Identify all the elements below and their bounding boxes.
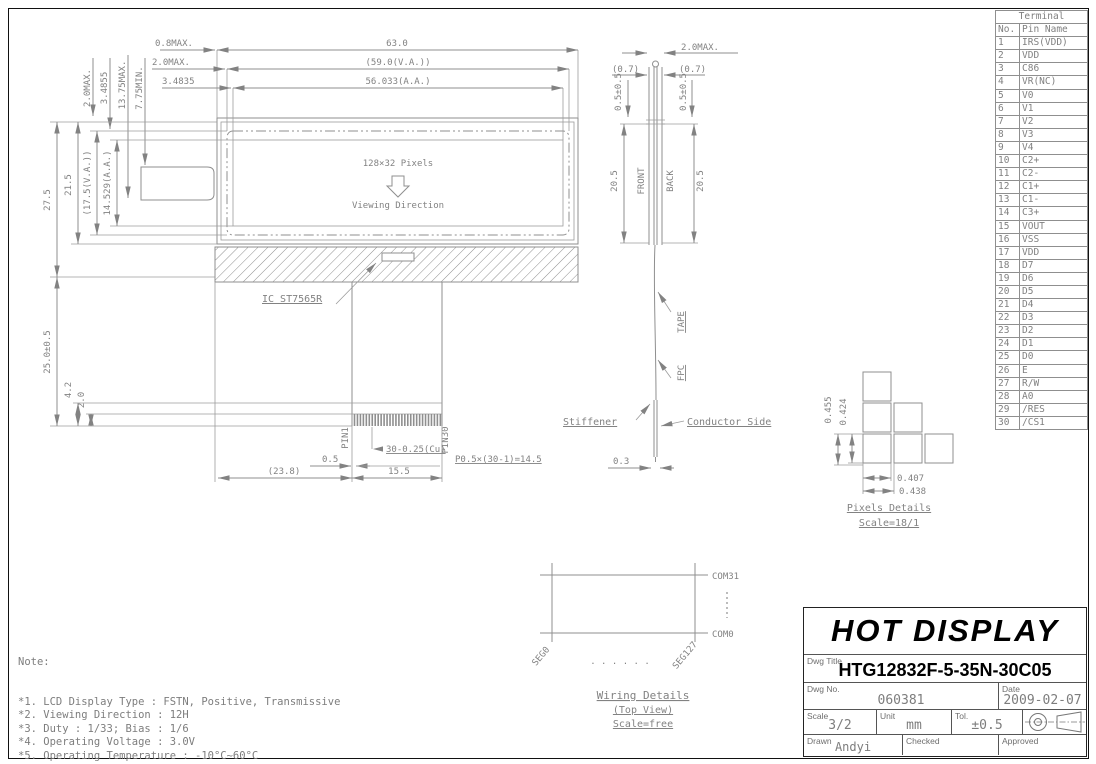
dim-4-2: 4.2 xyxy=(64,382,74,398)
terminal-row: 27R/W xyxy=(996,377,1088,390)
dwg-title-value: HTG12832F-5-35N-30C05 xyxy=(804,660,1086,681)
dim-27-5: 27.5 xyxy=(43,189,53,211)
wiring-details-subtitle: (Top View) xyxy=(613,705,673,716)
scale-value: 3/2 xyxy=(804,718,876,733)
dim-2-0max-left: 2.0MAX. xyxy=(83,69,93,107)
terminal-row: 17VDD xyxy=(996,246,1088,259)
terminal-table-title: Terminal xyxy=(996,11,1088,24)
terminal-row: 28A0 xyxy=(996,390,1088,403)
terminal-table: Terminal No. Pin Name 1IRS(VDD)2VDD3C864… xyxy=(995,10,1088,430)
px-dim-0-424: 0.424 xyxy=(839,398,849,425)
dim-2-0: 2.0 xyxy=(77,392,87,408)
terminal-row: 21D4 xyxy=(996,299,1088,312)
date-value: 2009-02-07 xyxy=(999,693,1086,708)
terminal-row: 19D6 xyxy=(996,272,1088,285)
company-name: HOT DISPLAY xyxy=(804,608,1086,654)
terminal-row: 8V3 xyxy=(996,128,1088,141)
terminal-row: 16VSS xyxy=(996,233,1088,246)
approved-label: Approved xyxy=(1002,736,1038,746)
projection-symbol-icon xyxy=(1023,710,1087,734)
dim-25-0: 25.0±0.5 xyxy=(43,330,53,373)
terminal-row: 5V0 xyxy=(996,89,1088,102)
terminal-row: 24D1 xyxy=(996,338,1088,351)
viewing-direction-label: Viewing Direction xyxy=(352,201,444,211)
dim-30-cu: 30-0.25(Cu) xyxy=(386,445,446,455)
left-tab xyxy=(141,167,214,200)
dim-63: 63.0 xyxy=(386,39,408,49)
unit-value: mm xyxy=(877,718,951,733)
fpc-label: FPC xyxy=(677,365,687,381)
terminal-table-body: 1IRS(VDD)2VDD3C864VR(NC)5V06V17V28V39V41… xyxy=(996,37,1088,430)
px-dim-0-407: 0.407 xyxy=(897,474,924,484)
active-area-outline xyxy=(233,140,563,226)
pin1-label: PIN1 xyxy=(341,427,351,449)
viewing-direction-arrow xyxy=(387,176,409,197)
seg-dots: . . . . . . xyxy=(590,657,650,667)
terminal-row: 18D7 xyxy=(996,259,1088,272)
seg0-label: SEG0 xyxy=(531,645,553,668)
dim-56-aa: 56.033(A.A.) xyxy=(365,77,430,87)
side-view: 2.0MAX. (0.7) (0.7) 0.5±0.5 0.5±0.5 20.5… xyxy=(563,43,771,468)
sv-dim-0-5-right: 0.5±0.5 xyxy=(679,73,689,111)
pixels-details: 0.455 0.424 0.407 0.438 Pixels Details S… xyxy=(824,372,953,529)
checked-label: Checked xyxy=(906,736,940,746)
dim-7-75min: 7.75MIN. xyxy=(135,66,145,109)
terminal-row: 6V1 xyxy=(996,102,1088,115)
dim-21-5: 21.5 xyxy=(64,174,74,196)
sv-dim-2-0max: 2.0MAX. xyxy=(681,43,719,53)
terminal-row: 23D2 xyxy=(996,325,1088,338)
dim-17-5-va: (17.5(V.A.)) xyxy=(83,150,93,215)
terminal-row: 9V4 xyxy=(996,141,1088,154)
dwg-no-value: 060381 xyxy=(804,693,998,708)
pixels-label: 128×32 Pixels xyxy=(363,159,433,169)
com0-label: COM0 xyxy=(712,630,734,640)
terminal-row: 30/CS1 xyxy=(996,416,1088,429)
wiring-details-scale: Scale=free xyxy=(613,719,673,730)
terminal-row: 10C2+ xyxy=(996,155,1088,168)
terminal-row: 25D0 xyxy=(996,351,1088,364)
px-dim-0-455: 0.455 xyxy=(824,396,834,423)
front-view: 128×32 Pixels Viewing Direction IC ST756… xyxy=(43,39,578,482)
drawing-sheet: 128×32 Pixels Viewing Direction IC ST756… xyxy=(0,0,1096,764)
pcb-hatched-area xyxy=(215,247,578,282)
sv-dim-20-5-right: 20.5 xyxy=(696,170,706,192)
note-line: *3. Duty : 1/33; Bias : 1/6 xyxy=(18,723,340,736)
front-label: FRONT xyxy=(637,167,647,195)
terminal-row: 7V2 xyxy=(996,115,1088,128)
terminal-row: 12C1+ xyxy=(996,181,1088,194)
note-line: *1. LCD Display Type : FSTN, Positive, T… xyxy=(18,696,340,709)
pixels-details-title: Pixels Details xyxy=(847,503,931,514)
dim-2-0max-top: 2.0MAX. xyxy=(152,58,190,68)
terminal-row: 15VOUT xyxy=(996,220,1088,233)
terminal-row: 1IRS(VDD) xyxy=(996,37,1088,50)
tol-value: ±0.5 xyxy=(952,718,1022,733)
dim-14-529-aa: 14.529(A.A.) xyxy=(103,150,113,215)
ic-chip xyxy=(382,253,414,261)
title-block: HOT DISPLAY Dwg Title HTG12832F-5-35N-30… xyxy=(803,607,1087,757)
notes-block: Note: *1. LCD Display Type : FSTN, Posit… xyxy=(18,629,340,764)
terminal-col-pin-name: Pin Name xyxy=(1020,24,1088,37)
terminal-row: 26E xyxy=(996,364,1088,377)
sv-dim-20-5-left: 20.5 xyxy=(610,170,620,192)
com31-label: COM31 xyxy=(712,572,739,582)
wiring-details: COM31 COM0 SEG0 SEG127 . . . . . . Wirin… xyxy=(531,563,739,730)
note-line: *2. Viewing Direction : 12H xyxy=(18,709,340,722)
conductor-side-label: Conductor Side xyxy=(687,417,771,428)
px-dim-0-438: 0.438 xyxy=(899,487,926,497)
terminal-row: 29/RES xyxy=(996,403,1088,416)
back-label: BACK xyxy=(666,170,676,192)
dim-pitch: P0.5×(30-1)=14.5 xyxy=(455,455,542,465)
dim-23-8: (23.8) xyxy=(268,467,301,477)
dim-15-5: 15.5 xyxy=(388,467,410,477)
notes-lines: *1. LCD Display Type : FSTN, Positive, T… xyxy=(18,696,340,764)
dim-59-va: (59.0(V.A.)) xyxy=(365,58,430,68)
pixels-details-scale: Scale=18/1 xyxy=(859,518,919,529)
drawn-value: Andyi xyxy=(804,740,902,754)
terminal-row: 2VDD xyxy=(996,50,1088,63)
stiffener-label: Stiffener xyxy=(563,417,617,428)
dim-0-5: 0.5 xyxy=(322,455,338,465)
terminal-row: 22D3 xyxy=(996,312,1088,325)
terminal-row: 20D5 xyxy=(996,285,1088,298)
dim-13-75max: 13.75MAX. xyxy=(118,61,128,110)
wiring-details-title: Wiring Details xyxy=(597,689,690,702)
fpc-pin-comb xyxy=(355,414,441,426)
terminal-row: 4VR(NC) xyxy=(996,76,1088,89)
viewing-area-outline xyxy=(227,131,569,235)
terminal-row: 13C1- xyxy=(996,194,1088,207)
ic-label: IC ST7565R xyxy=(262,294,323,305)
sv-dim-0-5-left: 0.5±0.5 xyxy=(614,73,624,111)
terminal-row: 11C2- xyxy=(996,168,1088,181)
terminal-row: 3C86 xyxy=(996,63,1088,76)
seg127-label: SEG127 xyxy=(671,640,700,671)
notes-title: Note: xyxy=(18,656,340,669)
dim-0-8max: 0.8MAX. xyxy=(155,39,193,49)
dim-3-4835: 3.4835 xyxy=(162,77,195,87)
dim-3-4855: 3.4855 xyxy=(100,72,110,105)
terminal-row: 14C3+ xyxy=(996,207,1088,220)
terminal-col-no: No. xyxy=(996,24,1020,37)
sv-dim-0-3: 0.3 xyxy=(613,457,629,467)
note-line: *4. Operating Voltage : 3.0V xyxy=(18,736,340,749)
note-line: *5. Operating Temperature : -10°C~60°C xyxy=(18,750,340,763)
tape-label: TAPE xyxy=(677,311,687,333)
